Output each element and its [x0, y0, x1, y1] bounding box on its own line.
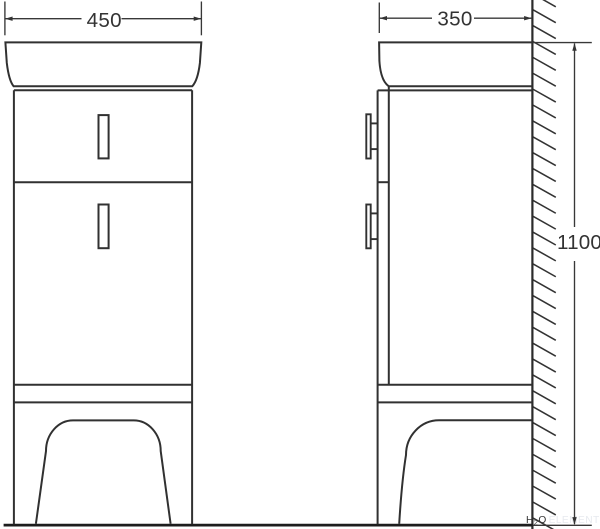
svg-text:450: 450: [87, 9, 122, 32]
svg-text:1100: 1100: [557, 231, 600, 254]
svg-text:350: 350: [437, 8, 472, 31]
